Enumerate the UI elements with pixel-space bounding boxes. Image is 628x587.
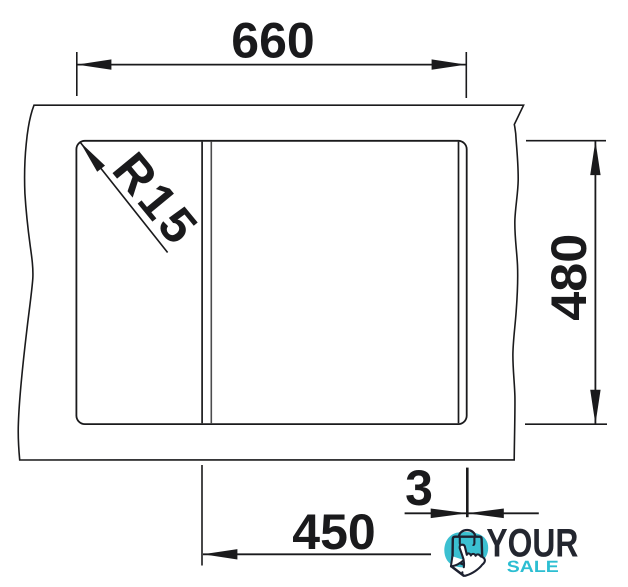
svg-text:480: 480 bbox=[541, 234, 597, 321]
svg-text:660: 660 bbox=[231, 13, 314, 69]
svg-text:450: 450 bbox=[292, 504, 375, 560]
svg-text:SALE: SALE bbox=[507, 558, 559, 576]
svg-text:3: 3 bbox=[405, 460, 433, 516]
